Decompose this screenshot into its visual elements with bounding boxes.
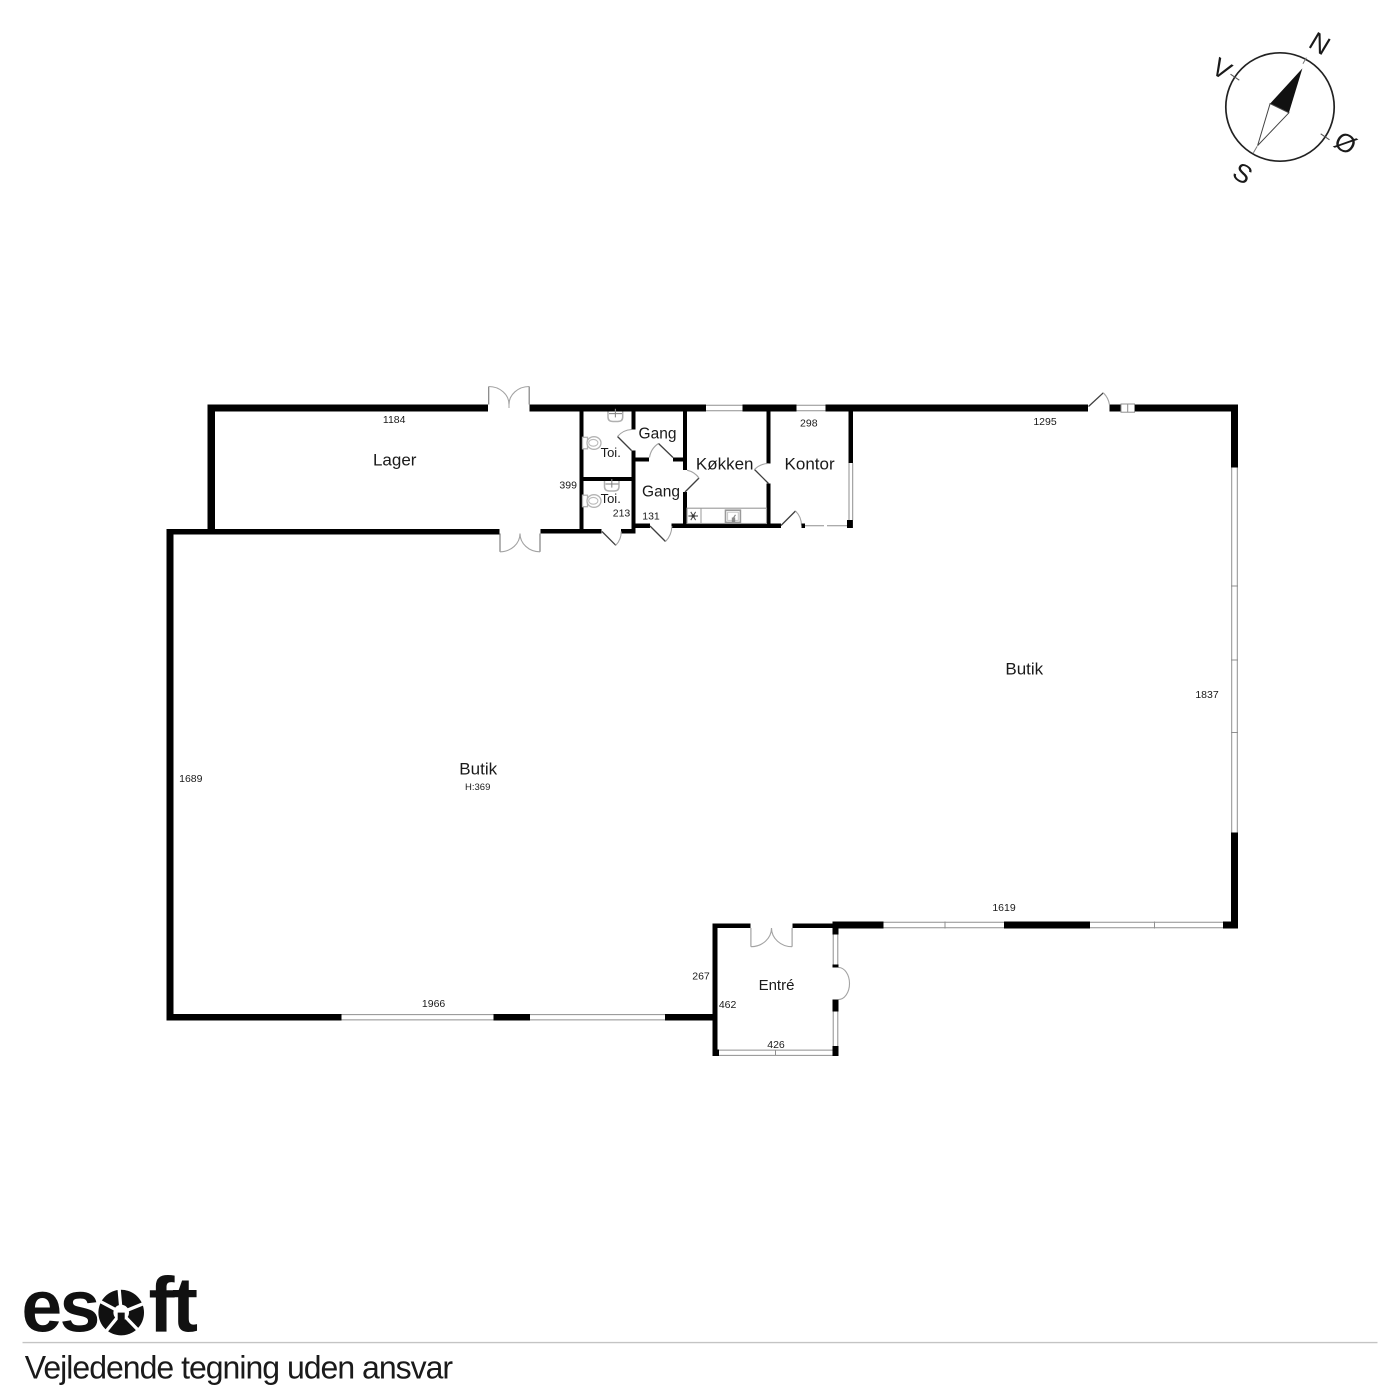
svg-text:267: 267 <box>692 970 710 982</box>
svg-text:Kontor: Kontor <box>785 455 835 474</box>
svg-text:Butik: Butik <box>459 760 497 779</box>
svg-text:298: 298 <box>800 418 818 430</box>
svg-text:1295: 1295 <box>1033 416 1057 428</box>
svg-text:1689: 1689 <box>179 773 203 785</box>
svg-text:1966: 1966 <box>422 998 446 1010</box>
svg-text:1837: 1837 <box>1195 689 1219 701</box>
svg-text:Butik: Butik <box>1005 660 1043 679</box>
svg-text:Gang: Gang <box>639 426 677 443</box>
svg-text:Toi.: Toi. <box>601 445 621 460</box>
svg-text:Lager: Lager <box>373 451 417 470</box>
svg-text:Gang: Gang <box>642 484 680 501</box>
svg-text:462: 462 <box>719 999 737 1011</box>
svg-text:426: 426 <box>767 1039 785 1051</box>
svg-text:es: es <box>22 1267 98 1348</box>
svg-text:ft: ft <box>149 1261 198 1349</box>
svg-text:H:369: H:369 <box>465 782 490 793</box>
svg-text:Toi.: Toi. <box>601 491 621 506</box>
svg-text:213: 213 <box>613 508 631 520</box>
svg-text:399: 399 <box>559 480 577 492</box>
svg-text:1619: 1619 <box>992 902 1016 914</box>
svg-text:Køkken: Køkken <box>696 455 754 474</box>
svg-text:1184: 1184 <box>383 414 406 426</box>
svg-text:131: 131 <box>642 510 660 522</box>
svg-text:Vejledende tegning uden ansvar: Vejledende tegning uden ansvar <box>25 1350 454 1386</box>
svg-text:Entré: Entré <box>759 977 795 994</box>
